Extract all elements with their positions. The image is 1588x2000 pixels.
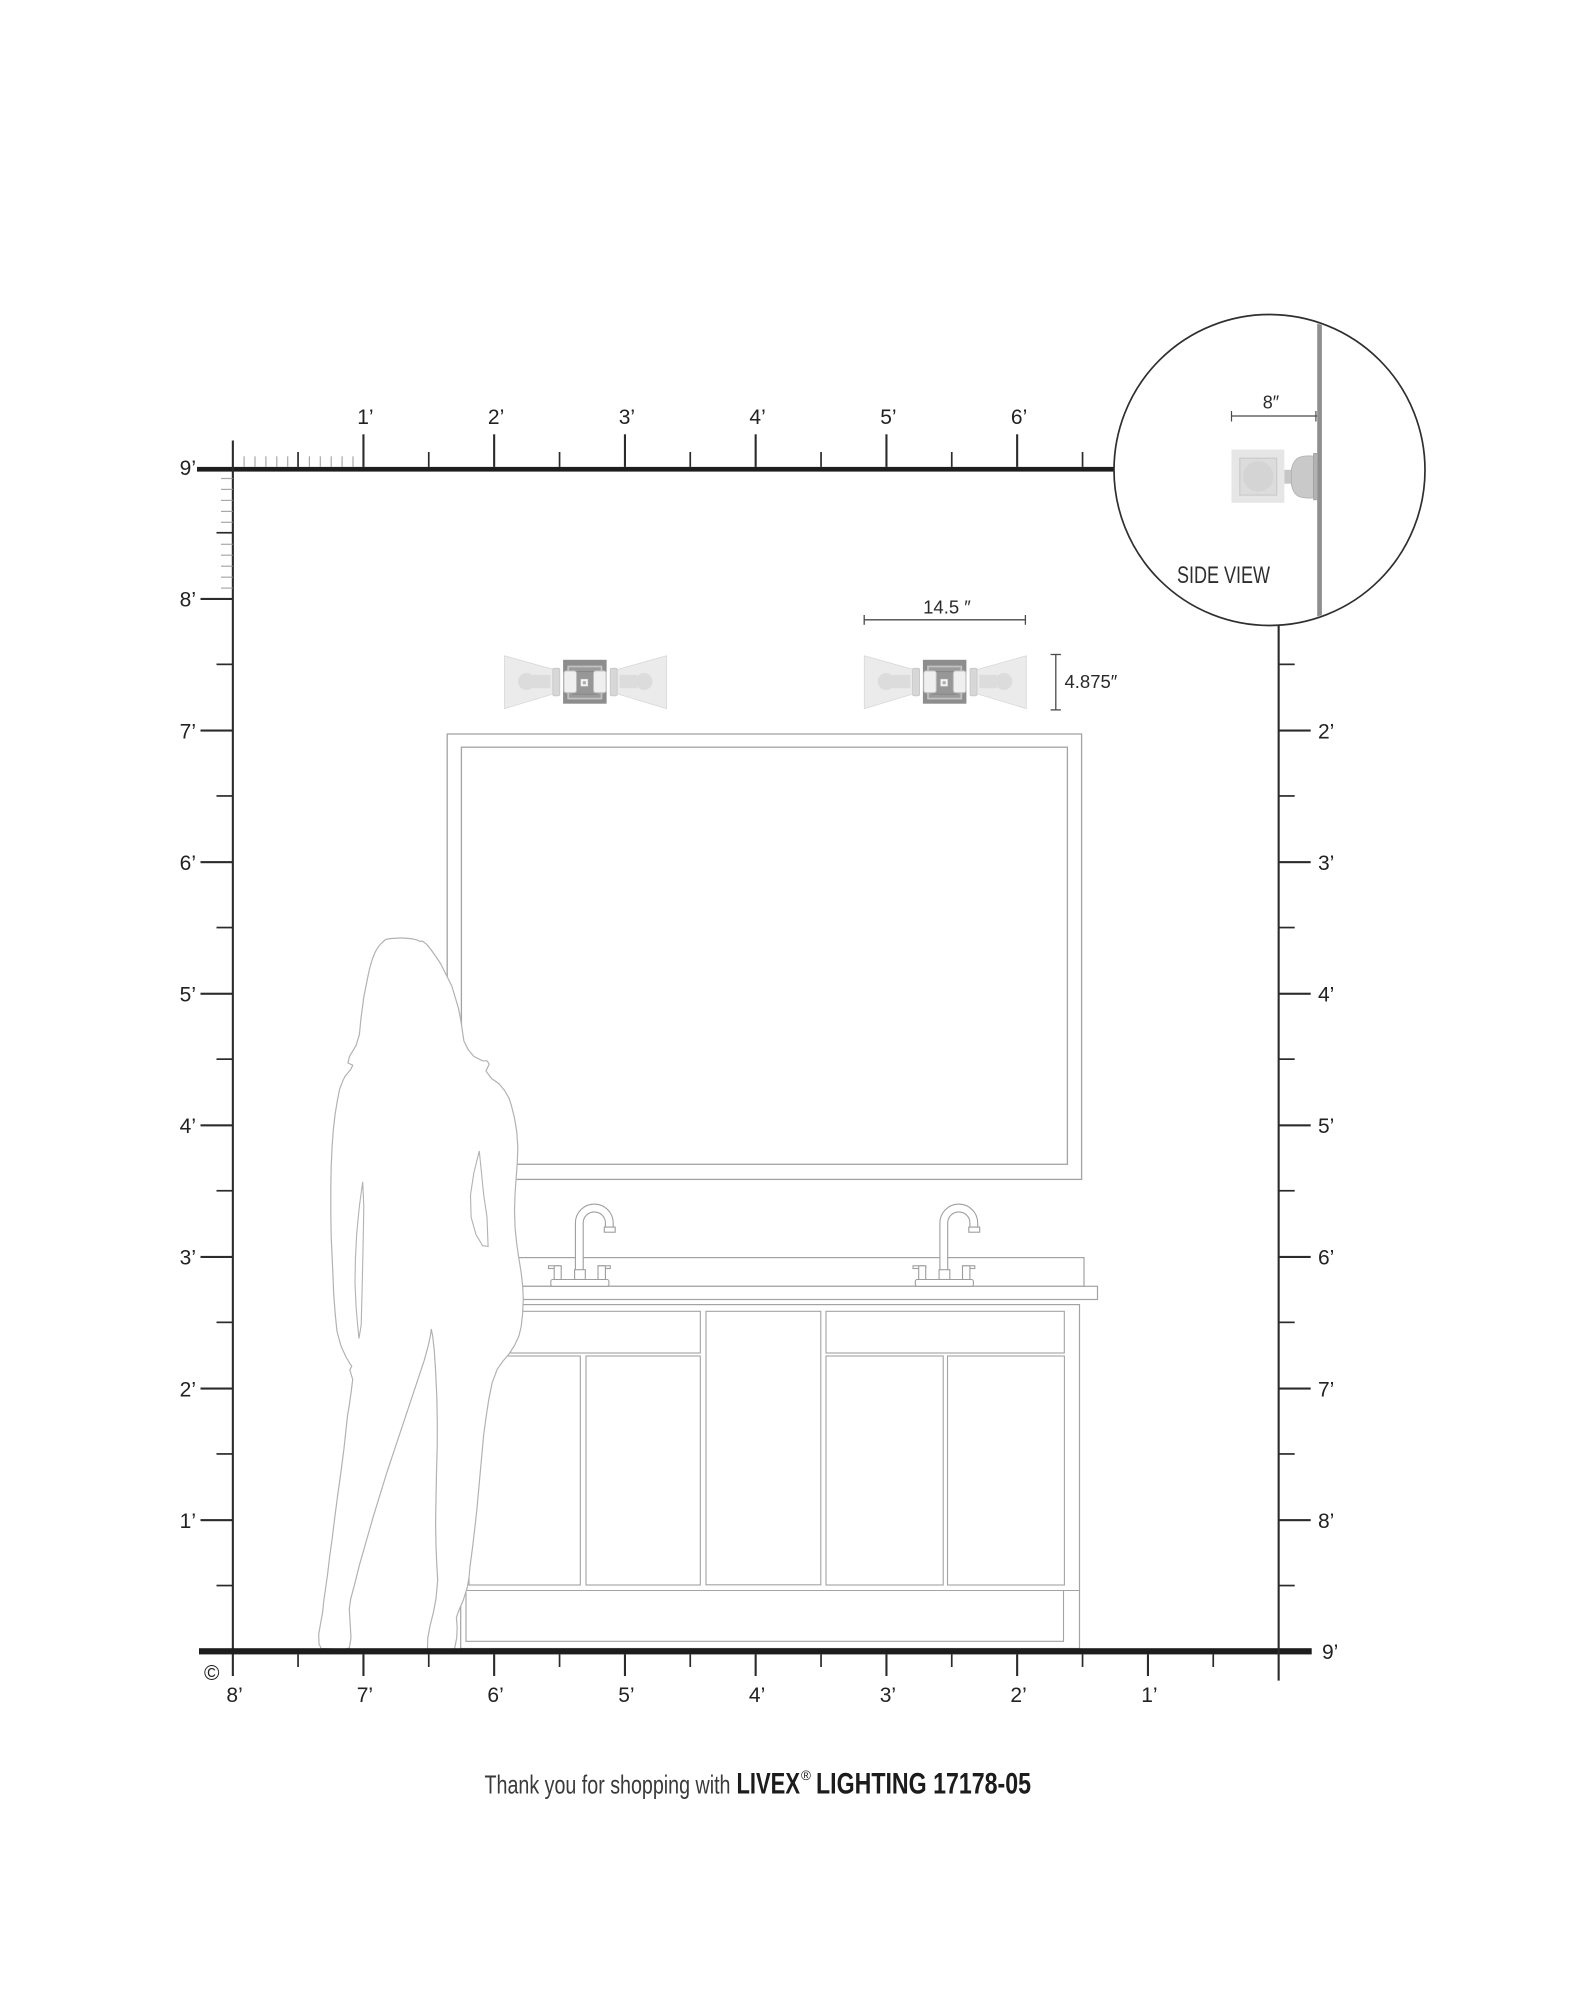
svg-text:4’: 4’ (749, 406, 765, 429)
svg-text:6’: 6’ (1318, 1247, 1334, 1270)
svg-text:2’: 2’ (180, 1378, 196, 1401)
svg-text:2’: 2’ (488, 406, 504, 429)
svg-text:9’: 9’ (180, 457, 196, 480)
svg-text:8’: 8’ (180, 589, 196, 612)
svg-text:4’: 4’ (1318, 984, 1334, 1007)
svg-text:1’: 1’ (1141, 1684, 1157, 1707)
svg-text:5’: 5’ (180, 984, 196, 1007)
svg-text:6’: 6’ (487, 1684, 503, 1707)
svg-text:7’: 7’ (180, 720, 196, 743)
svg-text:8’: 8’ (1318, 1510, 1334, 1533)
svg-text:8’: 8’ (226, 1684, 242, 1707)
svg-text:9’: 9’ (1322, 1641, 1338, 1664)
svg-text:®: ® (801, 1768, 811, 1783)
svg-text:2’: 2’ (1318, 720, 1334, 743)
svg-text:Thank you for shopping with: Thank you for shopping with (485, 1770, 731, 1800)
svg-text:8″: 8″ (1263, 393, 1280, 413)
svg-text:©: © (204, 1662, 220, 1685)
svg-text:3’: 3’ (180, 1247, 196, 1270)
svg-text:5’: 5’ (618, 1684, 634, 1707)
svg-text:LIGHTING 17178-05: LIGHTING 17178-05 (816, 1768, 1031, 1801)
svg-text:4’: 4’ (749, 1684, 765, 1707)
svg-text:5’: 5’ (880, 406, 896, 429)
svg-text:3’: 3’ (880, 1684, 896, 1707)
svg-text:6’: 6’ (1011, 406, 1027, 429)
svg-text:4.875″: 4.875″ (1065, 671, 1118, 692)
svg-text:7’: 7’ (1318, 1378, 1334, 1401)
svg-text:1’: 1’ (357, 406, 373, 429)
svg-text:7’: 7’ (357, 1684, 373, 1707)
svg-text:SIDE VIEW: SIDE VIEW (1177, 562, 1270, 589)
svg-text:3’: 3’ (619, 406, 635, 429)
svg-text:6’: 6’ (180, 852, 196, 875)
svg-text:14.5 ″: 14.5 ″ (923, 597, 971, 618)
svg-text:5’: 5’ (1318, 1115, 1334, 1138)
svg-text:2’: 2’ (1010, 1684, 1026, 1707)
svg-text:3’: 3’ (1318, 852, 1334, 875)
svg-text:1’: 1’ (180, 1510, 196, 1533)
svg-text:4’: 4’ (180, 1115, 196, 1138)
svg-text:LIVEX: LIVEX (737, 1768, 801, 1801)
